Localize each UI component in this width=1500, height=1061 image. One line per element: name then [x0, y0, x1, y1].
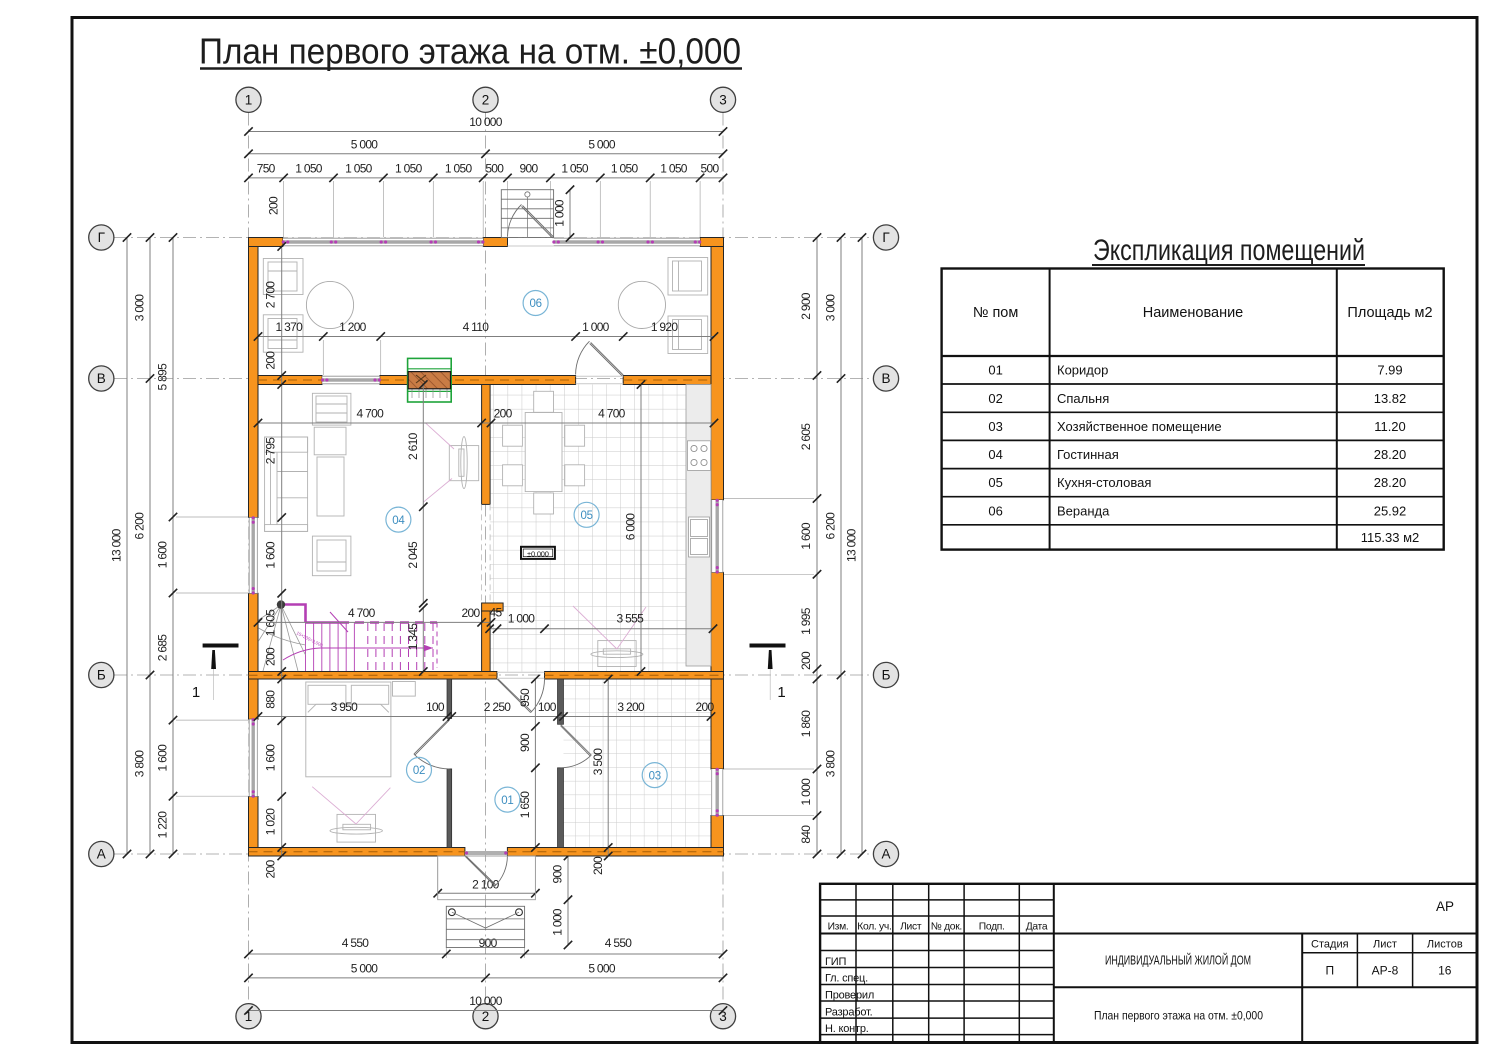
svg-text:2 605: 2 605 [799, 423, 813, 451]
svg-text:Стадия: Стадия [1311, 939, 1349, 951]
svg-text:25.92: 25.92 [1374, 503, 1407, 518]
svg-text:1 650: 1 650 [518, 791, 532, 819]
svg-text:1 020: 1 020 [264, 808, 278, 836]
svg-text:1 000: 1 000 [508, 612, 536, 626]
svg-text:1 000: 1 000 [551, 908, 565, 936]
svg-text:1 000: 1 000 [582, 320, 610, 334]
svg-text:13 000: 13 000 [845, 528, 859, 562]
svg-text:4 700: 4 700 [357, 407, 385, 421]
svg-text:1 600: 1 600 [264, 541, 278, 569]
svg-text:4 110: 4 110 [463, 320, 490, 334]
svg-text:200: 200 [264, 860, 278, 879]
svg-text:3: 3 [719, 92, 727, 107]
svg-text:5 000: 5 000 [351, 137, 379, 151]
svg-text:200: 200 [264, 351, 278, 370]
svg-text:3 200: 3 200 [617, 700, 645, 714]
svg-text:750: 750 [257, 161, 276, 175]
svg-text:Б: Б [882, 668, 891, 683]
svg-text:Кухня-столовая: Кухня-столовая [1057, 475, 1151, 490]
svg-text:4 700: 4 700 [348, 606, 376, 620]
svg-text:ГИП: ГИП [825, 956, 846, 968]
svg-text:АР-8: АР-8 [1372, 964, 1399, 978]
svg-text:11.20: 11.20 [1374, 419, 1406, 434]
svg-text:01: 01 [988, 363, 1002, 378]
svg-text:4 700: 4 700 [598, 407, 626, 421]
svg-text:№ пом: № пом [973, 305, 1018, 321]
svg-text:16: 16 [1438, 964, 1452, 978]
svg-text:1: 1 [192, 684, 200, 701]
svg-text:5 000: 5 000 [588, 137, 616, 151]
svg-text:500: 500 [485, 161, 504, 175]
svg-text:1 600: 1 600 [264, 744, 278, 772]
svg-text:200: 200 [462, 606, 481, 620]
svg-text:Гостинная: Гостинная [1057, 447, 1119, 462]
svg-text:Наименование: Наименование [1143, 305, 1244, 321]
svg-text:1 050: 1 050 [660, 161, 688, 175]
svg-text:4 550: 4 550 [605, 936, 633, 950]
svg-text:950: 950 [518, 688, 532, 707]
svg-text:900: 900 [518, 733, 532, 752]
svg-text:Дата: Дата [1026, 922, 1048, 933]
svg-text:Лист: Лист [1373, 939, 1397, 951]
svg-text:Спальня: Спальня [1057, 391, 1109, 406]
svg-text:1 000: 1 000 [553, 199, 567, 227]
svg-text:Кол. уч.: Кол. уч. [857, 922, 891, 933]
svg-text:1 920: 1 920 [651, 320, 679, 334]
svg-text:200: 200 [494, 407, 513, 421]
svg-text:5 895: 5 895 [156, 363, 170, 391]
svg-text:1 200: 1 200 [339, 320, 367, 334]
svg-text:1 370: 1 370 [276, 320, 304, 334]
svg-text:Изм.: Изм. [828, 922, 849, 933]
svg-text:200: 200 [799, 651, 813, 670]
svg-text:АР: АР [1436, 899, 1454, 914]
svg-text:13.82: 13.82 [1374, 391, 1407, 406]
svg-text:03: 03 [649, 770, 661, 782]
svg-text:№ док.: № док. [931, 922, 962, 933]
svg-text:План первого этажа на отм. ±0,: План первого этажа на отм. ±0,000 [199, 31, 741, 72]
svg-text:±0.000: ±0.000 [527, 549, 549, 558]
svg-text:900: 900 [479, 936, 498, 950]
svg-text:А: А [881, 847, 890, 862]
svg-text:1 860: 1 860 [799, 710, 813, 738]
svg-text:1 050: 1 050 [395, 161, 423, 175]
svg-text:Листов: Листов [1427, 939, 1463, 951]
svg-text:1: 1 [777, 684, 785, 701]
svg-text:03: 03 [988, 419, 1002, 434]
svg-text:1 345: 1 345 [406, 623, 420, 651]
svg-text:3 800: 3 800 [133, 750, 147, 778]
svg-text:П: П [1325, 964, 1334, 978]
svg-text:1 050: 1 050 [611, 161, 639, 175]
svg-text:7.99: 7.99 [1377, 363, 1402, 378]
svg-text:200: 200 [591, 856, 605, 875]
svg-text:2 045: 2 045 [406, 541, 420, 569]
svg-text:06: 06 [988, 503, 1002, 518]
svg-text:04: 04 [988, 447, 1002, 462]
svg-text:28.20: 28.20 [1374, 447, 1407, 462]
svg-text:Гл. спец.: Гл. спец. [825, 973, 868, 985]
svg-text:Площадь м2: Площадь м2 [1347, 305, 1432, 321]
svg-text:2: 2 [482, 1009, 490, 1024]
svg-text:880: 880 [264, 690, 278, 709]
svg-text:Хозяйственное помещение: Хозяйственное помещение [1057, 419, 1222, 434]
svg-text:200: 200 [267, 196, 281, 215]
svg-text:1 050: 1 050 [295, 161, 323, 175]
svg-text:1 050: 1 050 [345, 161, 373, 175]
svg-text:01: 01 [501, 795, 513, 807]
svg-text:2 900: 2 900 [799, 292, 813, 320]
svg-text:3 500: 3 500 [591, 748, 605, 776]
svg-text:04: 04 [392, 515, 405, 527]
svg-text:3 000: 3 000 [133, 294, 147, 322]
svg-text:4 550: 4 550 [342, 936, 370, 950]
svg-text:Подп.: Подп. [979, 922, 1005, 933]
svg-text:45: 45 [490, 606, 503, 620]
svg-text:100: 100 [426, 700, 445, 714]
svg-text:900: 900 [551, 865, 565, 884]
svg-text:5 000: 5 000 [351, 961, 379, 975]
svg-text:В: В [881, 371, 890, 386]
svg-text:05: 05 [988, 475, 1002, 490]
svg-text:Экспликация помещений: Экспликация помещений [1093, 234, 1365, 267]
svg-text:А: А [97, 847, 106, 862]
svg-text:1 600: 1 600 [799, 522, 813, 550]
svg-text:115.33 м2: 115.33 м2 [1361, 530, 1420, 545]
svg-text:ИНДИВИДУАЛЬНЫЙ ЖИЛОЙ ДОМ: ИНДИВИДУАЛЬНЫЙ ЖИЛОЙ ДОМ [1105, 953, 1251, 968]
svg-text:1 000: 1 000 [799, 778, 813, 806]
svg-text:1 600: 1 600 [156, 744, 170, 772]
svg-text:2: 2 [482, 92, 490, 107]
svg-text:Н. контр.: Н. контр. [825, 1023, 869, 1035]
svg-text:1 050: 1 050 [561, 161, 589, 175]
svg-text:840: 840 [799, 825, 813, 844]
svg-text:Веранда: Веранда [1057, 503, 1110, 518]
svg-text:3 800: 3 800 [824, 750, 838, 778]
svg-text:500: 500 [701, 161, 720, 175]
svg-text:Г: Г [882, 230, 890, 245]
svg-text:3 950: 3 950 [331, 700, 359, 714]
svg-text:200: 200 [696, 700, 715, 714]
svg-text:1 600: 1 600 [156, 541, 170, 569]
svg-text:02: 02 [988, 391, 1002, 406]
svg-text:10 000: 10 000 [469, 994, 503, 1008]
svg-text:5 000: 5 000 [588, 961, 616, 975]
svg-text:Разработ.: Разработ. [825, 1006, 873, 1018]
svg-text:1: 1 [245, 92, 253, 107]
svg-text:10 000: 10 000 [469, 115, 503, 129]
svg-text:6 200: 6 200 [133, 512, 147, 540]
svg-text:3 000: 3 000 [824, 294, 838, 322]
svg-text:6 000: 6 000 [624, 513, 638, 541]
svg-text:2 685: 2 685 [156, 634, 170, 662]
svg-text:900: 900 [520, 161, 539, 175]
svg-text:05: 05 [580, 510, 592, 522]
svg-text:02: 02 [413, 765, 425, 777]
svg-text:1 995: 1 995 [799, 607, 813, 635]
svg-text:Г: Г [98, 230, 106, 245]
svg-text:6 200: 6 200 [824, 512, 838, 540]
svg-text:200: 200 [264, 647, 278, 666]
svg-text:2 610: 2 610 [406, 432, 420, 460]
svg-text:В: В [97, 371, 106, 386]
svg-text:100: 100 [538, 700, 557, 714]
svg-text:2 795: 2 795 [264, 437, 278, 465]
svg-text:06: 06 [529, 298, 541, 310]
svg-text:28.20: 28.20 [1374, 475, 1407, 490]
svg-text:1 050: 1 050 [445, 161, 473, 175]
svg-text:13 000: 13 000 [110, 528, 124, 562]
svg-text:3 555: 3 555 [617, 612, 645, 626]
svg-text:2 250: 2 250 [484, 700, 512, 714]
svg-text:Коридор: Коридор [1057, 363, 1108, 378]
svg-text:Б: Б [97, 668, 106, 683]
svg-text:2 700: 2 700 [264, 281, 278, 309]
svg-text:План первого этажа на отм. ±0,: План первого этажа на отм. ±0,000 [1094, 1009, 1263, 1023]
svg-text:Лист: Лист [900, 922, 922, 933]
svg-text:1 220: 1 220 [156, 811, 170, 839]
svg-text:Проверил: Проверил [825, 990, 874, 1002]
